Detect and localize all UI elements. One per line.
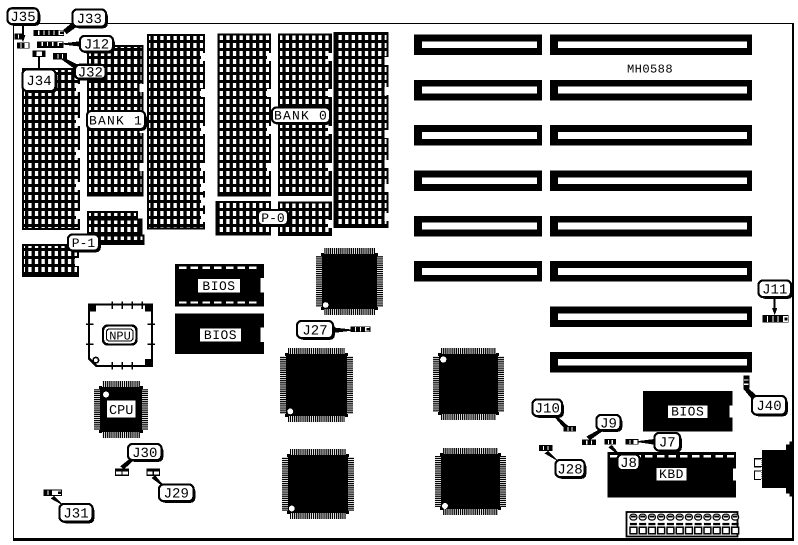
svg-text:J32: J32 (78, 66, 103, 82)
svg-text:P-1: P-1 (72, 236, 96, 251)
svg-text:J12: J12 (84, 38, 109, 54)
svg-text:J40: J40 (756, 399, 781, 415)
svg-text:J11: J11 (762, 283, 787, 299)
svg-text:J33: J33 (77, 12, 102, 28)
svg-text:CPU: CPU (109, 404, 133, 419)
svg-text:J27: J27 (302, 323, 327, 339)
svg-text:NPU: NPU (109, 330, 131, 344)
svg-text:BANK 0: BANK 0 (274, 109, 328, 124)
svg-text:J8: J8 (620, 456, 637, 472)
svg-text:J35: J35 (10, 10, 35, 26)
svg-text:J28: J28 (557, 462, 582, 478)
svg-text:J7: J7 (659, 436, 676, 452)
svg-text:BIOS: BIOS (671, 405, 704, 420)
svg-text:J31: J31 (63, 507, 88, 523)
svg-text:MH0588: MH0588 (627, 63, 673, 77)
svg-text:KBD: KBD (659, 467, 684, 482)
svg-text:BIOS: BIOS (202, 279, 235, 294)
svg-text:J34: J34 (26, 74, 51, 90)
svg-text:J9: J9 (600, 416, 617, 432)
svg-text:J30: J30 (132, 446, 157, 462)
svg-text:BANK 1: BANK 1 (89, 113, 143, 128)
svg-text:J29: J29 (164, 487, 189, 503)
svg-text:BIOS: BIOS (204, 328, 237, 343)
svg-text:J10: J10 (535, 402, 560, 418)
svg-text:P-0: P-0 (261, 211, 284, 226)
